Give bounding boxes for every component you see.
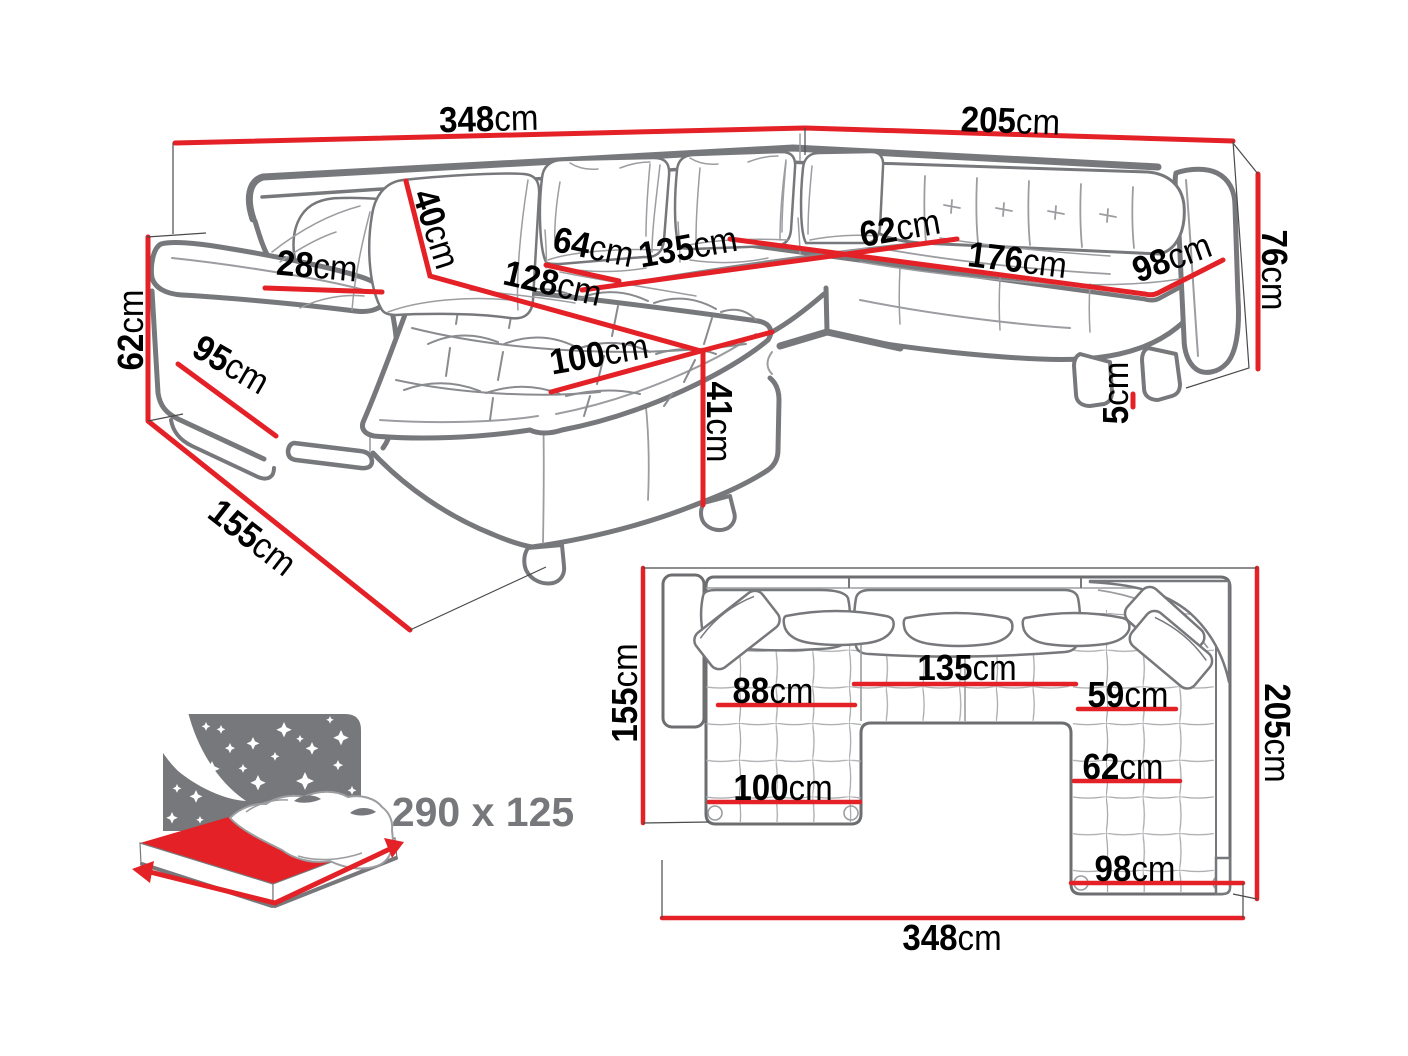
- svg-text:205cm: 205cm: [1257, 683, 1297, 782]
- svg-text:98cm: 98cm: [1095, 850, 1176, 890]
- svg-text:290 x 125: 290 x 125: [392, 789, 574, 835]
- svg-text:41cm: 41cm: [699, 382, 739, 463]
- svg-text:5cm: 5cm: [1097, 362, 1137, 425]
- svg-text:205cm: 205cm: [960, 100, 1061, 143]
- svg-text:28cm: 28cm: [275, 243, 359, 289]
- svg-text:348cm: 348cm: [439, 98, 539, 140]
- svg-text:88cm: 88cm: [733, 672, 814, 712]
- svg-text:76cm: 76cm: [1254, 230, 1294, 311]
- svg-text:62cm: 62cm: [1083, 748, 1164, 788]
- svg-text:59cm: 59cm: [1088, 676, 1169, 716]
- svg-text:62cm: 62cm: [112, 290, 152, 371]
- svg-text:135cm: 135cm: [917, 649, 1016, 689]
- svg-text:348cm: 348cm: [902, 919, 1001, 959]
- svg-text:95cm: 95cm: [186, 328, 276, 403]
- svg-text:100cm: 100cm: [733, 769, 832, 809]
- svg-text:155cm: 155cm: [606, 643, 646, 742]
